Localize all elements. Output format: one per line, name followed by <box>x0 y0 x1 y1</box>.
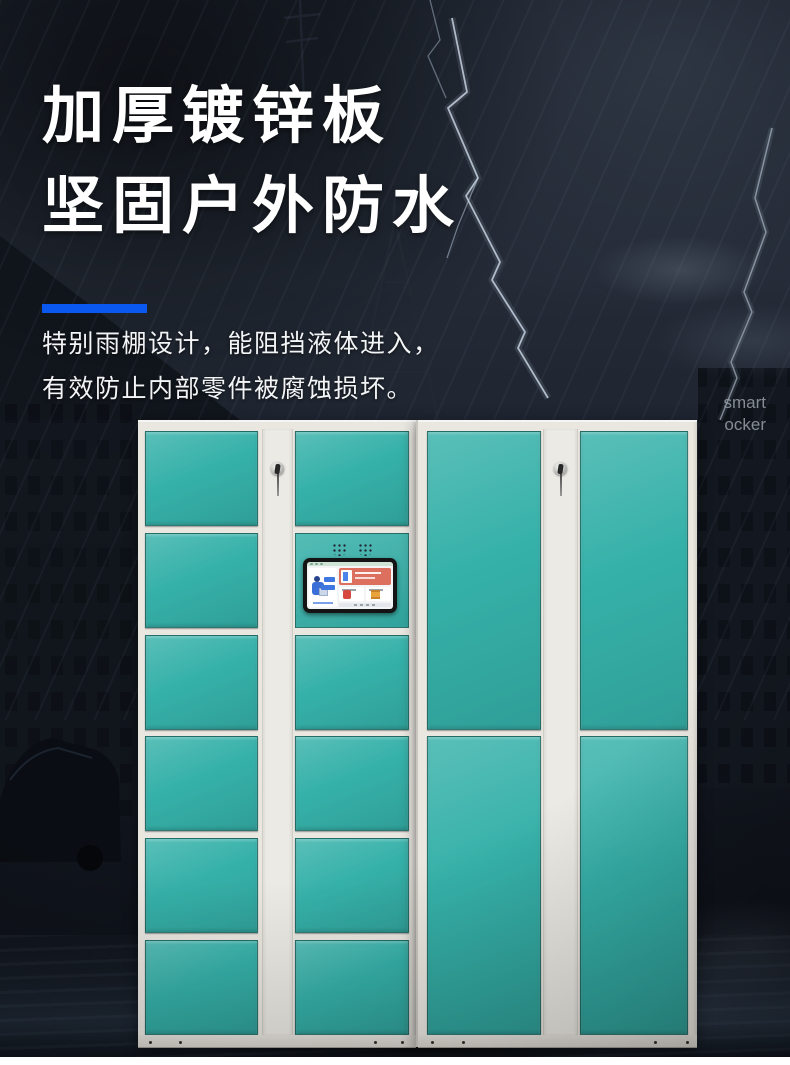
deposit-option-card <box>366 587 391 601</box>
courier-illustration <box>309 568 337 607</box>
title-line-2: 坚固户外防水 <box>42 162 462 252</box>
locker-unit-right <box>416 420 697 1047</box>
bolt <box>686 1041 689 1044</box>
locker-door <box>295 431 409 526</box>
locker-door <box>145 736 258 831</box>
bolt <box>431 1041 434 1044</box>
bolt <box>374 1041 377 1044</box>
page-bottom-strip <box>0 1057 790 1065</box>
locker-door-tall <box>580 736 688 1035</box>
brand-watermark: smart ocker <box>724 392 767 436</box>
subtitle-text: 特别雨棚设计，能阻挡液体进入， 有效防止内部零件被腐蚀损坏。 <box>42 322 440 412</box>
bolt <box>654 1041 657 1044</box>
base-plinth <box>138 1035 416 1048</box>
bolt <box>401 1041 404 1044</box>
locker-door <box>145 838 258 933</box>
accent-divider <box>42 304 147 313</box>
locker-door <box>295 940 409 1035</box>
subtitle-line-1: 特别雨棚设计，能阻挡液体进入， <box>42 322 440 367</box>
locker-door <box>145 635 258 730</box>
key-lock-icon <box>554 462 568 498</box>
control-panel <box>295 533 409 628</box>
locker-door <box>145 533 258 628</box>
kiosk-touchscreen <box>303 558 397 613</box>
subtitle-line-2: 有效防止内部零件被腐蚀损坏。 <box>42 367 440 412</box>
bolt <box>179 1041 182 1044</box>
base-plinth <box>418 1035 697 1048</box>
locker-door <box>145 940 258 1035</box>
screen-toolbar <box>339 603 391 607</box>
smart-locker-cabinet <box>138 420 695 1047</box>
watermark-line-2: ocker <box>724 414 767 436</box>
promo-page: 加厚镀锌板 坚固户外防水 特别雨棚设计，能阻挡液体进入， 有效防止内部零件被腐蚀… <box>0 0 790 1065</box>
speaker-grille-icon <box>331 542 348 556</box>
locker-door <box>295 635 409 730</box>
promo-banner <box>339 568 391 585</box>
speaker-grille-icon <box>357 542 374 556</box>
page-title: 加厚镀锌板 坚固户外防水 <box>42 72 462 252</box>
locker-unit-left <box>138 420 416 1047</box>
title-line-1: 加厚镀锌板 <box>42 72 462 162</box>
bolt <box>462 1041 465 1044</box>
locker-door <box>295 736 409 831</box>
pickup-option-card <box>339 587 364 601</box>
locker-door-tall <box>427 431 541 730</box>
watermark-line-1: smart <box>724 392 767 414</box>
lock-column <box>262 429 293 1035</box>
locker-door-tall <box>580 431 688 730</box>
screen-display <box>307 562 393 609</box>
lock-column <box>543 429 578 1035</box>
locker-door-tall <box>427 736 541 1035</box>
bolt <box>149 1041 152 1044</box>
key-lock-icon <box>271 462 285 498</box>
locker-door <box>295 838 409 933</box>
locker-door <box>145 431 258 526</box>
